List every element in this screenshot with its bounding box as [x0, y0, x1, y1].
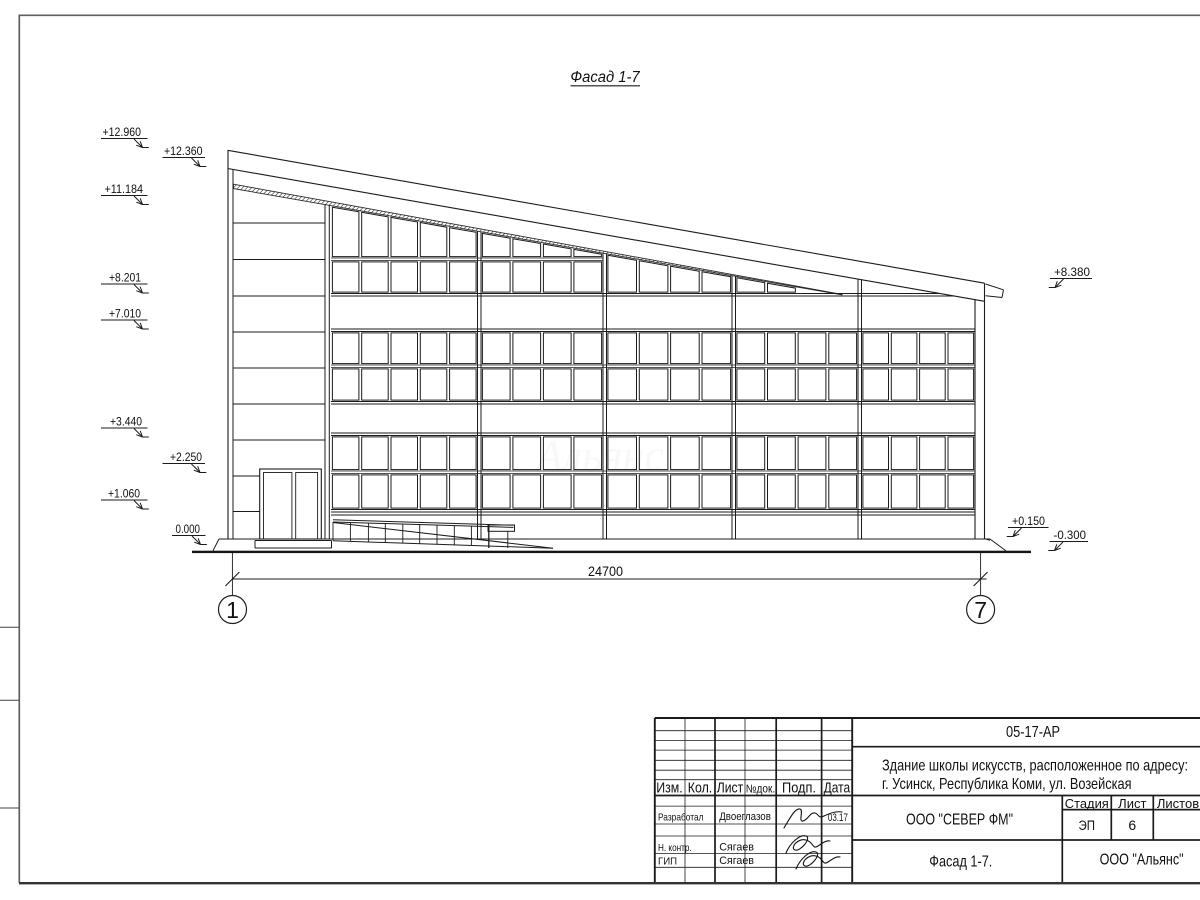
svg-text:Подп.: Подп. [782, 780, 816, 796]
svg-text:+0.150: +0.150 [1012, 514, 1045, 528]
svg-text:+1.060: +1.060 [108, 487, 140, 501]
svg-text:Листов: Листов [1157, 796, 1199, 811]
svg-text:Здание школы искусств, располо: Здание школы искусств, расположенное по … [882, 758, 1188, 775]
svg-text:6: 6 [1128, 817, 1136, 833]
svg-text:03.17: 03.17 [828, 812, 848, 824]
svg-text:Разработал: Разработал [658, 812, 704, 824]
svg-text:+12.960: +12.960 [103, 125, 142, 139]
svg-text:Двоеглазов: Двоеглазов [719, 811, 771, 823]
svg-text:24700: 24700 [588, 563, 623, 579]
svg-text:Фасад 1-7: Фасад 1-7 [570, 69, 641, 86]
svg-text:05-17-АР: 05-17-АР [1006, 724, 1060, 741]
svg-text:Альянс: Альянс [533, 431, 664, 480]
svg-text:ООО "СЕВЕР ФМ": ООО "СЕВЕР ФМ" [906, 812, 1013, 829]
svg-text:Дата: Дата [824, 780, 851, 796]
svg-text:+8.380: +8.380 [1054, 265, 1090, 279]
svg-text:№док.: №док. [746, 784, 776, 796]
svg-text:Н. контр.: Н. контр. [658, 842, 692, 854]
svg-text:Кол.: Кол. [688, 780, 713, 796]
svg-text:ГИП: ГИП [658, 856, 677, 868]
svg-text:г. Усинск, Республика Коми, ул: г. Усинск, Республика Коми, ул. Возейска… [882, 776, 1132, 793]
svg-text:+8.201: +8.201 [109, 271, 141, 285]
svg-text:Сягаев: Сягаев [719, 855, 754, 867]
svg-text:+12.360: +12.360 [164, 144, 203, 158]
svg-text:1: 1 [226, 597, 239, 623]
svg-text:Фасад 1-7.: Фасад 1-7. [929, 854, 992, 871]
svg-text:-0.300: -0.300 [1054, 528, 1087, 542]
svg-text:7: 7 [974, 597, 987, 623]
svg-text:Стадия: Стадия [1065, 796, 1109, 811]
svg-text:ЭП: ЭП [1079, 818, 1096, 833]
svg-text:+11.184: +11.184 [105, 182, 144, 196]
svg-text:Изм.: Изм. [656, 780, 683, 796]
svg-text:+3.440: +3.440 [110, 415, 142, 429]
svg-text:+2.250: +2.250 [170, 450, 202, 464]
svg-text:Лист: Лист [1118, 796, 1146, 811]
svg-text:0.000: 0.000 [176, 522, 201, 536]
svg-text:+7.010: +7.010 [109, 307, 141, 321]
svg-text:Лист: Лист [717, 780, 744, 796]
svg-text:Сягаев: Сягаев [719, 841, 754, 853]
svg-text:ООО "Альянс": ООО "Альянс" [1100, 852, 1184, 869]
